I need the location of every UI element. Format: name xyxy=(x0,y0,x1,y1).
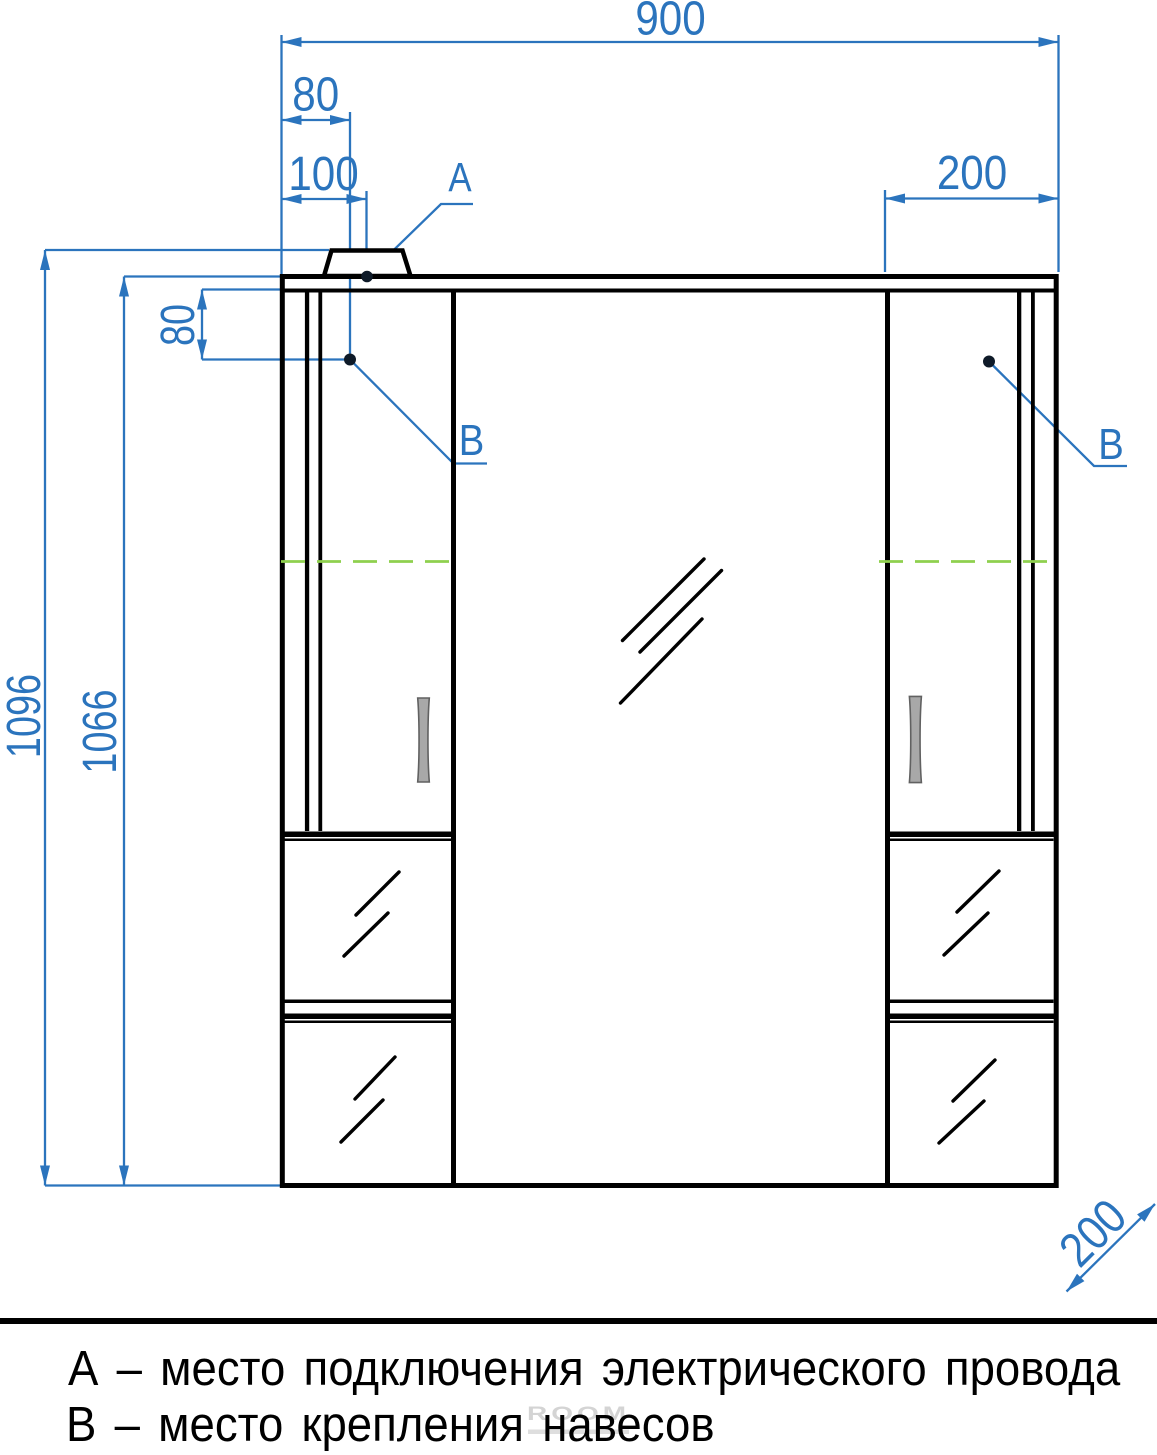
svg-text:900: 900 xyxy=(635,0,705,45)
svg-text:В: В xyxy=(1098,420,1124,469)
svg-text:200: 200 xyxy=(937,145,1007,199)
svg-text:В: В xyxy=(459,416,485,465)
svg-text:80: 80 xyxy=(152,304,206,346)
svg-text:В – место крепления навесов: В – место крепления навесов xyxy=(66,1398,715,1453)
svg-text:1096: 1096 xyxy=(0,674,51,758)
svg-text:А – место подключения электрич: А – место подключения электрического про… xyxy=(68,1342,1121,1397)
svg-text:1066: 1066 xyxy=(74,689,128,773)
svg-text:100: 100 xyxy=(288,146,358,200)
svg-text:А: А xyxy=(448,155,472,200)
svg-text:80: 80 xyxy=(292,67,339,121)
